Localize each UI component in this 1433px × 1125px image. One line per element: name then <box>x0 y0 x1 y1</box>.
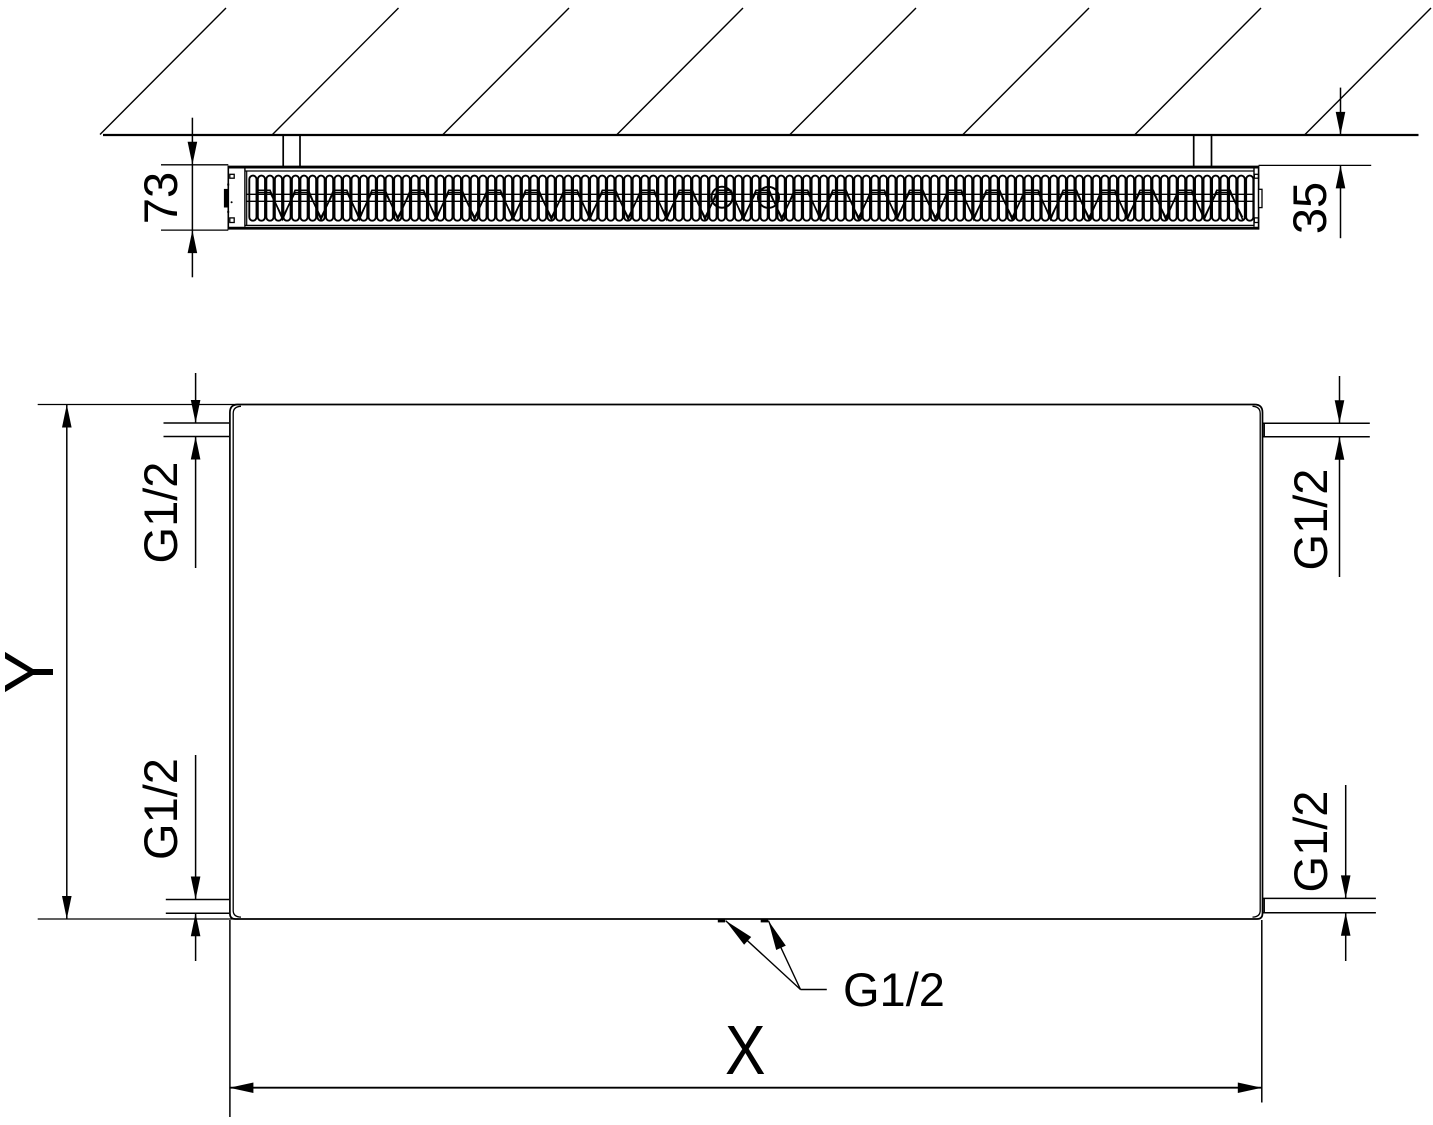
svg-text:G1/2: G1/2 <box>843 963 945 1016</box>
svg-text:35: 35 <box>1283 182 1336 234</box>
svg-text:X: X <box>725 1011 766 1089</box>
svg-text:73: 73 <box>134 172 187 224</box>
svg-text:G1/2: G1/2 <box>1284 469 1337 571</box>
svg-text:Y: Y <box>0 651 68 694</box>
svg-text:G1/2: G1/2 <box>134 462 187 564</box>
svg-text:G1/2: G1/2 <box>1284 791 1337 893</box>
svg-text:G1/2: G1/2 <box>134 758 187 860</box>
